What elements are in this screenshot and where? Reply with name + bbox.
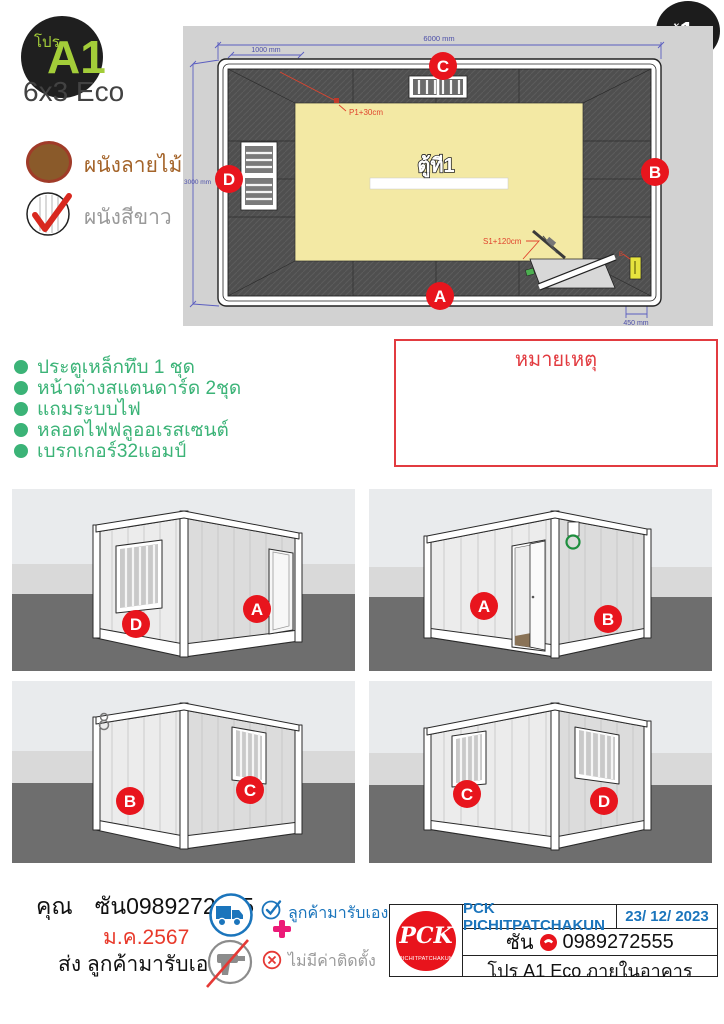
bullet-icon bbox=[14, 402, 28, 416]
note-title: หมายเหตุ bbox=[396, 343, 716, 375]
company-table: PCK PICHITPATCHAKUN PCK PICHITPATCHAKUN … bbox=[389, 904, 718, 977]
plan-marker-s1: S1+120cm bbox=[483, 237, 522, 246]
window bbox=[232, 727, 266, 784]
plan-dim-length: 6000 mm bbox=[423, 34, 454, 43]
svg-text:B: B bbox=[124, 792, 136, 811]
svg-text:C: C bbox=[244, 781, 256, 800]
document-date: 23/ 12/ 2023 bbox=[616, 905, 717, 928]
model-description: โปร A1 Eco ภายในอาคาร bbox=[463, 956, 717, 985]
logo-monogram: PCK bbox=[396, 923, 456, 949]
contact-name: ซัน bbox=[506, 926, 533, 958]
no-install-label: ไม่มีค่าติดตั้ง bbox=[288, 949, 376, 974]
pickup-label: ลูกค้ามารับเอง bbox=[288, 901, 388, 926]
svg-text:A: A bbox=[251, 600, 263, 619]
feature-text: เบรกเกอร์32แอมป์ bbox=[37, 436, 186, 466]
plan-dim-offset: 1000 mm bbox=[251, 47, 280, 54]
svg-text:D: D bbox=[223, 170, 235, 189]
window bbox=[116, 540, 162, 613]
svg-text:B: B bbox=[602, 610, 614, 629]
window bbox=[575, 727, 619, 784]
bullet-icon bbox=[14, 360, 28, 374]
svg-text:D: D bbox=[130, 615, 142, 634]
door bbox=[269, 549, 293, 634]
svg-text:A: A bbox=[434, 287, 446, 306]
white-wall-label: ผนังสีขาว bbox=[84, 201, 172, 234]
company-logo: PCK PICHITPATCHAKUN bbox=[390, 905, 463, 976]
view-3d-back-left: B C bbox=[12, 681, 355, 863]
svg-text:A: A bbox=[478, 597, 490, 616]
contact-phone: 0989272555 bbox=[563, 931, 674, 954]
model-size: 6x3 Eco bbox=[23, 76, 124, 108]
svg-text:D: D bbox=[598, 792, 610, 811]
plan-room-label: ตู้ที1 bbox=[417, 154, 454, 179]
plan-dim-door: 450 mm bbox=[623, 320, 648, 327]
plus-icon bbox=[273, 920, 291, 938]
check-icon bbox=[261, 897, 285, 921]
wood-wall-label: ผนังลายไม้ bbox=[84, 149, 182, 182]
circle-x-icon bbox=[262, 950, 282, 970]
window bbox=[452, 731, 486, 787]
view-3d-back-right: C D bbox=[369, 681, 712, 863]
phone-icon bbox=[540, 934, 557, 951]
spec-sheet-page: โปร A1 6x3 Eco ตู้1/4 ผนังลายไม้ ผนังสีข… bbox=[0, 0, 724, 1024]
view-3d-front-right: A B bbox=[369, 489, 712, 671]
floor-plan-drawing: 6000 mm 1000 mm 3000 mm 450 mm ตู้ที1 bbox=[183, 26, 713, 326]
contact-row: ซัน 0989272555 bbox=[463, 929, 717, 956]
feature-list: ประตูเหล็กทึบ 1 ชุด หน้าต่างสแตนดาร์ด 2ช… bbox=[14, 356, 241, 461]
company-name: PCK PICHITPATCHAKUN bbox=[463, 905, 616, 928]
view-3d-front-left: D A bbox=[12, 489, 355, 671]
svg-text:B: B bbox=[649, 163, 661, 182]
bullet-icon bbox=[14, 444, 28, 458]
truck-icon bbox=[208, 892, 254, 938]
white-wall-swatch-icon bbox=[25, 191, 73, 237]
svg-text:C: C bbox=[461, 785, 473, 804]
customer-prefix: คุณ bbox=[36, 893, 73, 919]
no-install-drill-icon bbox=[206, 938, 254, 986]
bullet-icon bbox=[14, 423, 28, 437]
svg-text:C: C bbox=[437, 57, 449, 76]
plan-window-left bbox=[241, 142, 277, 210]
shipping-line: ส่ง ลูกค้ามารับเอง bbox=[58, 948, 219, 981]
door bbox=[512, 540, 545, 651]
plan-marker-breaker: B bbox=[619, 252, 623, 258]
plan-window-top bbox=[409, 76, 467, 98]
bullet-icon bbox=[14, 381, 28, 395]
note-box: หมายเหตุ bbox=[394, 339, 718, 467]
plan-marker-p1: P1+30cm bbox=[349, 108, 383, 117]
plan-dim-width: 3000 mm bbox=[184, 179, 211, 186]
logo-text: PICHITPATCHAKUN bbox=[396, 956, 456, 962]
wood-wall-swatch-icon bbox=[26, 141, 72, 183]
